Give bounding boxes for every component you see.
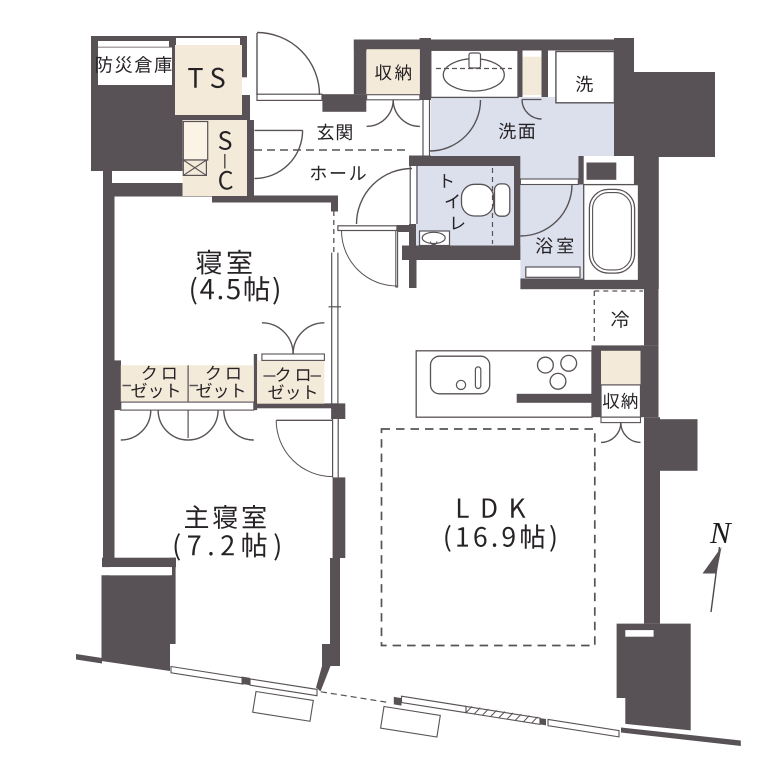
svg-text:N: N <box>709 515 733 550</box>
